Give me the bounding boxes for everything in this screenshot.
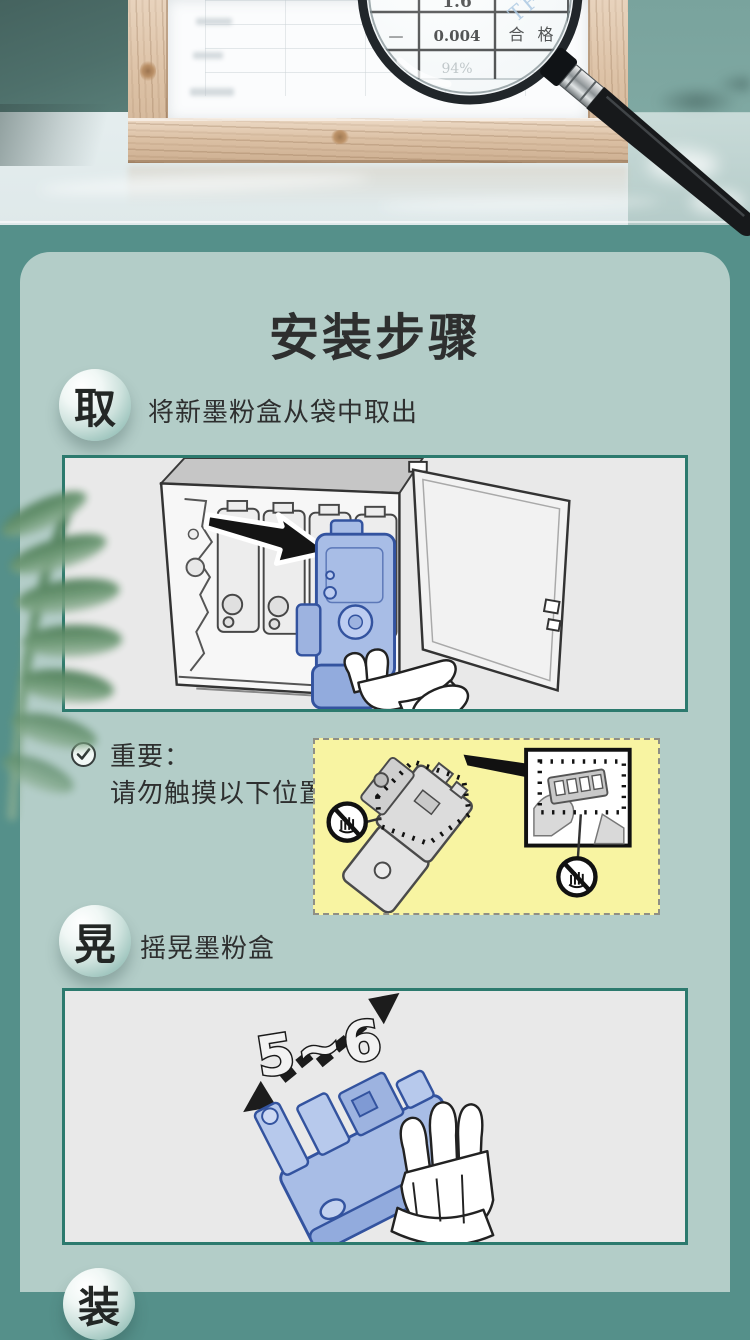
no-touch-icon (558, 858, 595, 895)
important-text: 请勿触摸以下位置 (110, 775, 326, 812)
shake-drawing: 5~6 (65, 991, 685, 1242)
step-badge-shake: 晃 (59, 905, 131, 977)
step-badge-shake-char: 晃 (74, 911, 116, 972)
printer-insert-drawing (65, 458, 685, 709)
step-shake-label: 摇晃墨粉盒 (140, 928, 275, 965)
chip-inset-box (526, 750, 630, 846)
faint-text (190, 88, 234, 96)
step-badge-install: 装 (63, 1268, 135, 1340)
shake-illustration: 5~6 (62, 988, 688, 1245)
important-note: 重要： 请勿触摸以下位置 (110, 738, 326, 812)
dark-wall-backdrop (0, 0, 130, 112)
magnifying-glass: 1.6 — 0.004 合 格 94% TFIC (330, 0, 750, 240)
do-not-touch-panel (313, 738, 660, 915)
lens-glass (366, 0, 574, 96)
wood-knot (140, 60, 156, 82)
no-touch-icon (329, 804, 366, 841)
monstera-leaf-decoration (0, 486, 137, 821)
step-take-label: 将新墨粉盒从袋中取出 (148, 392, 418, 429)
step-badge-take: 取 (59, 369, 131, 441)
table-shadow (0, 104, 132, 166)
faint-text (196, 18, 232, 25)
shake-count-label: 5~6 (252, 1007, 388, 1090)
hands-shaking (392, 1102, 494, 1242)
faint-text (193, 52, 223, 59)
inset-pointer (464, 755, 527, 777)
page-title: 安装步骤 (20, 298, 730, 370)
step-badge-take-char: 取 (74, 375, 116, 436)
magnifier-handle (538, 46, 750, 245)
important-title: 重要： (110, 738, 326, 775)
do-not-touch-drawing (315, 740, 658, 913)
step-badge-install-char: 装 (78, 1274, 120, 1335)
printer-insert-illustration (62, 455, 688, 712)
